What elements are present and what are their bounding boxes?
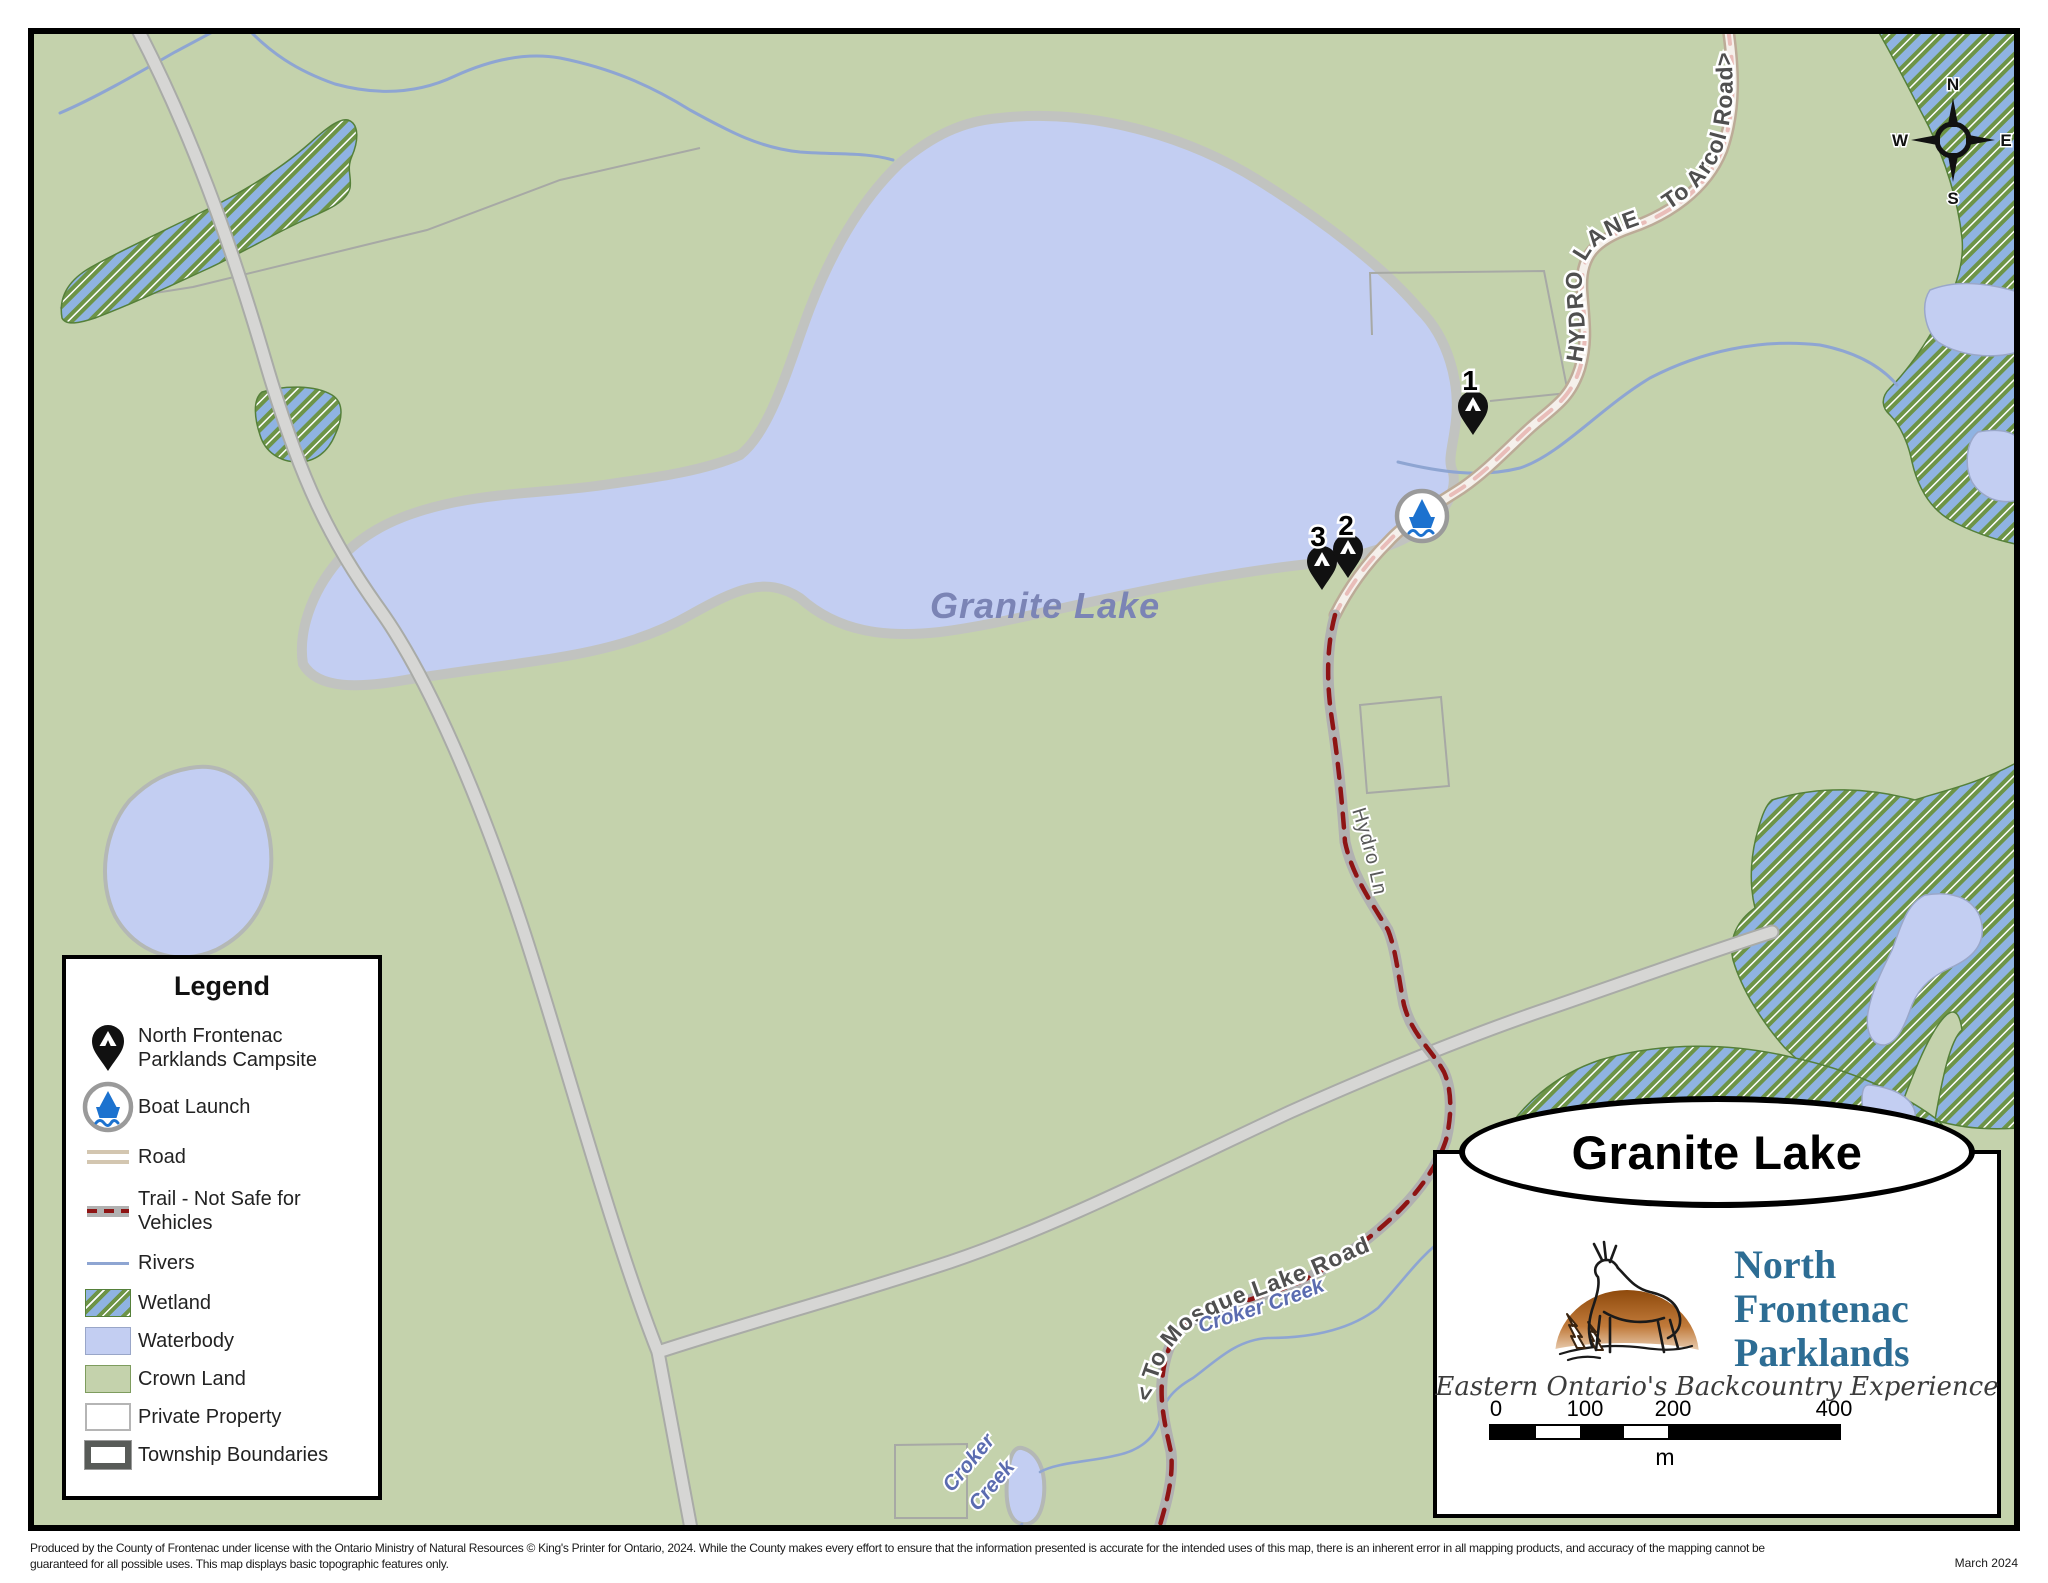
wetland-swatch: [85, 1289, 131, 1317]
compass-w-label: W: [1892, 131, 1909, 150]
legend-item-rivers: Rivers: [66, 1242, 378, 1284]
compass-n-label: N: [1947, 75, 1959, 94]
waterbody-swatch: [85, 1327, 131, 1355]
campsite-pin-icon: [78, 1023, 138, 1073]
scale-label-400: 400: [1816, 1396, 1853, 1422]
north-frontenac-parklands-logo: [1530, 1228, 1720, 1383]
scale-bar: 0 100 200 400 m: [1489, 1396, 1841, 1471]
legend-item-crown-land: Crown Land: [66, 1360, 378, 1398]
crown-land-swatch: [85, 1365, 131, 1393]
logo-line-north: North: [1734, 1243, 1910, 1287]
compass-e-label: E: [2000, 131, 2011, 150]
scale-label-100: 100: [1567, 1396, 1604, 1422]
road-swatch: [87, 1150, 129, 1164]
footer: Produced by the County of Frontenac unde…: [30, 1540, 2018, 1572]
scale-bar-unit: m: [1489, 1444, 1841, 1471]
legend-item-campsite: North Frontenac Parklands Campsite: [66, 1016, 378, 1080]
campsite-1-number-label: 1: [1462, 365, 1478, 396]
lake-name-label: Granite Lake: [930, 585, 1160, 626]
title-oval: Granite Lake: [1459, 1096, 1975, 1208]
legend-item-road: Road: [66, 1134, 378, 1180]
logo-wordmark: North Frontenac Parklands: [1734, 1243, 1910, 1375]
legend-title: Legend: [66, 971, 378, 1002]
compass-s-label: S: [1947, 189, 1958, 208]
legend-box: Legend North Frontenac Parklands Campsit…: [62, 955, 382, 1500]
logo-line-parklands: Parklands: [1734, 1331, 1910, 1375]
boat-launch-icon: [1397, 491, 1447, 541]
campsite-3-number-label: 3: [1310, 521, 1326, 552]
legend-item-township-boundaries: Township Boundaries: [66, 1436, 378, 1474]
rivers-swatch: [87, 1262, 129, 1265]
footer-disclaimer-line2: guaranteed for all possible uses. This m…: [30, 1556, 2018, 1572]
scale-bar-segments: [1489, 1424, 1841, 1440]
private-property-swatch: [85, 1403, 131, 1431]
legend-item-private-property: Private Property: [66, 1398, 378, 1436]
township-boundaries-swatch: [85, 1441, 131, 1469]
footer-disclaimer-line1: Produced by the County of Frontenac unde…: [30, 1540, 2018, 1556]
footer-date: March 2024: [1955, 1556, 2018, 1570]
campsite-2-number-label: 2: [1338, 510, 1354, 541]
legend-item-waterbody: Waterbody: [66, 1322, 378, 1360]
legend-item-boat-launch: Boat Launch: [66, 1080, 378, 1134]
legend-item-wetland: Wetland: [66, 1284, 378, 1322]
scale-label-200: 200: [1655, 1396, 1692, 1422]
logo-line-frontenac: Frontenac: [1734, 1287, 1910, 1331]
scale-label-0: 0: [1490, 1396, 1502, 1422]
trail-swatch: [87, 1206, 129, 1217]
boat-launch-icon: [78, 1081, 138, 1133]
map-title: Granite Lake: [1572, 1125, 1863, 1180]
granite-lake-map-page: Granite Lake HYDRO LANE To Arcol Road> H…: [0, 0, 2048, 1583]
legend-item-trail: Trail - Not Safe for Vehicles: [66, 1180, 378, 1242]
